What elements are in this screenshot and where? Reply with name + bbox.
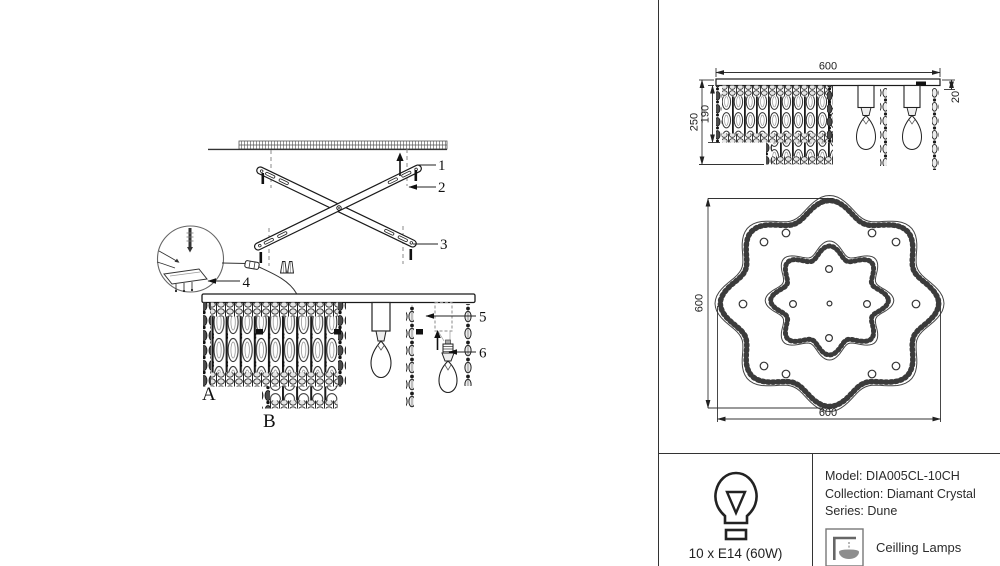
crystal-chain <box>932 88 939 170</box>
dim-width-600: 600 <box>819 61 837 73</box>
canopy-plate <box>202 294 475 303</box>
category-label: Ceilling Lamps <box>876 540 961 555</box>
candle-bulb <box>371 303 391 378</box>
crystal-mesh-a <box>203 303 346 387</box>
callout-3: 3 <box>440 237 448 253</box>
side-view-drawing: 600 250 190 20 <box>660 55 980 190</box>
candle-bulbs-side <box>857 82 940 171</box>
callout-1: 1 <box>438 158 446 174</box>
bulb-spec-label: 10 x E14 (60W) <box>659 546 812 561</box>
top-view-drawing: 600 600 <box>688 183 978 431</box>
dim-height-190: 190 <box>700 105 712 123</box>
e14-bulb-assembly <box>439 340 457 393</box>
assembly-diagram: 1 2 3 4 <box>140 118 505 440</box>
series-line: Series: Dune <box>825 503 1000 521</box>
model-line: Model: DIA005CL-10CH <box>825 468 1000 486</box>
ceiling-hatch <box>208 141 447 149</box>
section-label-b: B <box>263 411 276 432</box>
scalloped-plate-outline <box>715 196 944 412</box>
callout-4: 4 <box>243 275 251 291</box>
spec-bulb-cell: 10 x E14 (60W) <box>659 454 812 566</box>
ceiling-lamp-icon <box>825 528 864 566</box>
plate-side-view <box>716 79 940 86</box>
callout-2: 2 <box>438 180 446 196</box>
callout-leaders-123 <box>409 165 438 244</box>
dim-top-view-width: 600 <box>819 407 837 419</box>
section-label-a: A <box>202 384 216 405</box>
crystal-chain <box>880 88 887 166</box>
callout-6: 6 <box>479 346 487 362</box>
spec-info-cell: Model: DIA005CL-10CH Collection: Diamant… <box>812 454 1000 566</box>
bulb-icon <box>707 466 765 548</box>
wiring-detail-circle <box>157 226 224 292</box>
crystal-chain <box>406 305 414 408</box>
dim-top-view-height: 600 <box>694 294 706 312</box>
dim-offset-20: 20 <box>950 91 962 103</box>
callout-5: 5 <box>479 310 487 326</box>
instruction-sheet: 1 2 3 4 <box>0 0 1000 566</box>
category-row: Ceilling Lamps <box>825 528 1000 566</box>
collection-line: Collection: Diamant Crystal <box>825 486 1000 504</box>
crystal-mesh-b <box>262 387 338 409</box>
mounting-bracket-cross <box>253 164 422 251</box>
up-arrow-icon <box>434 330 441 350</box>
spec-box: 10 x E14 (60W) Model: DIA005CL-10CH Coll… <box>659 453 1000 566</box>
wire-connector <box>222 260 297 293</box>
crystal-mesh-side <box>716 86 833 165</box>
